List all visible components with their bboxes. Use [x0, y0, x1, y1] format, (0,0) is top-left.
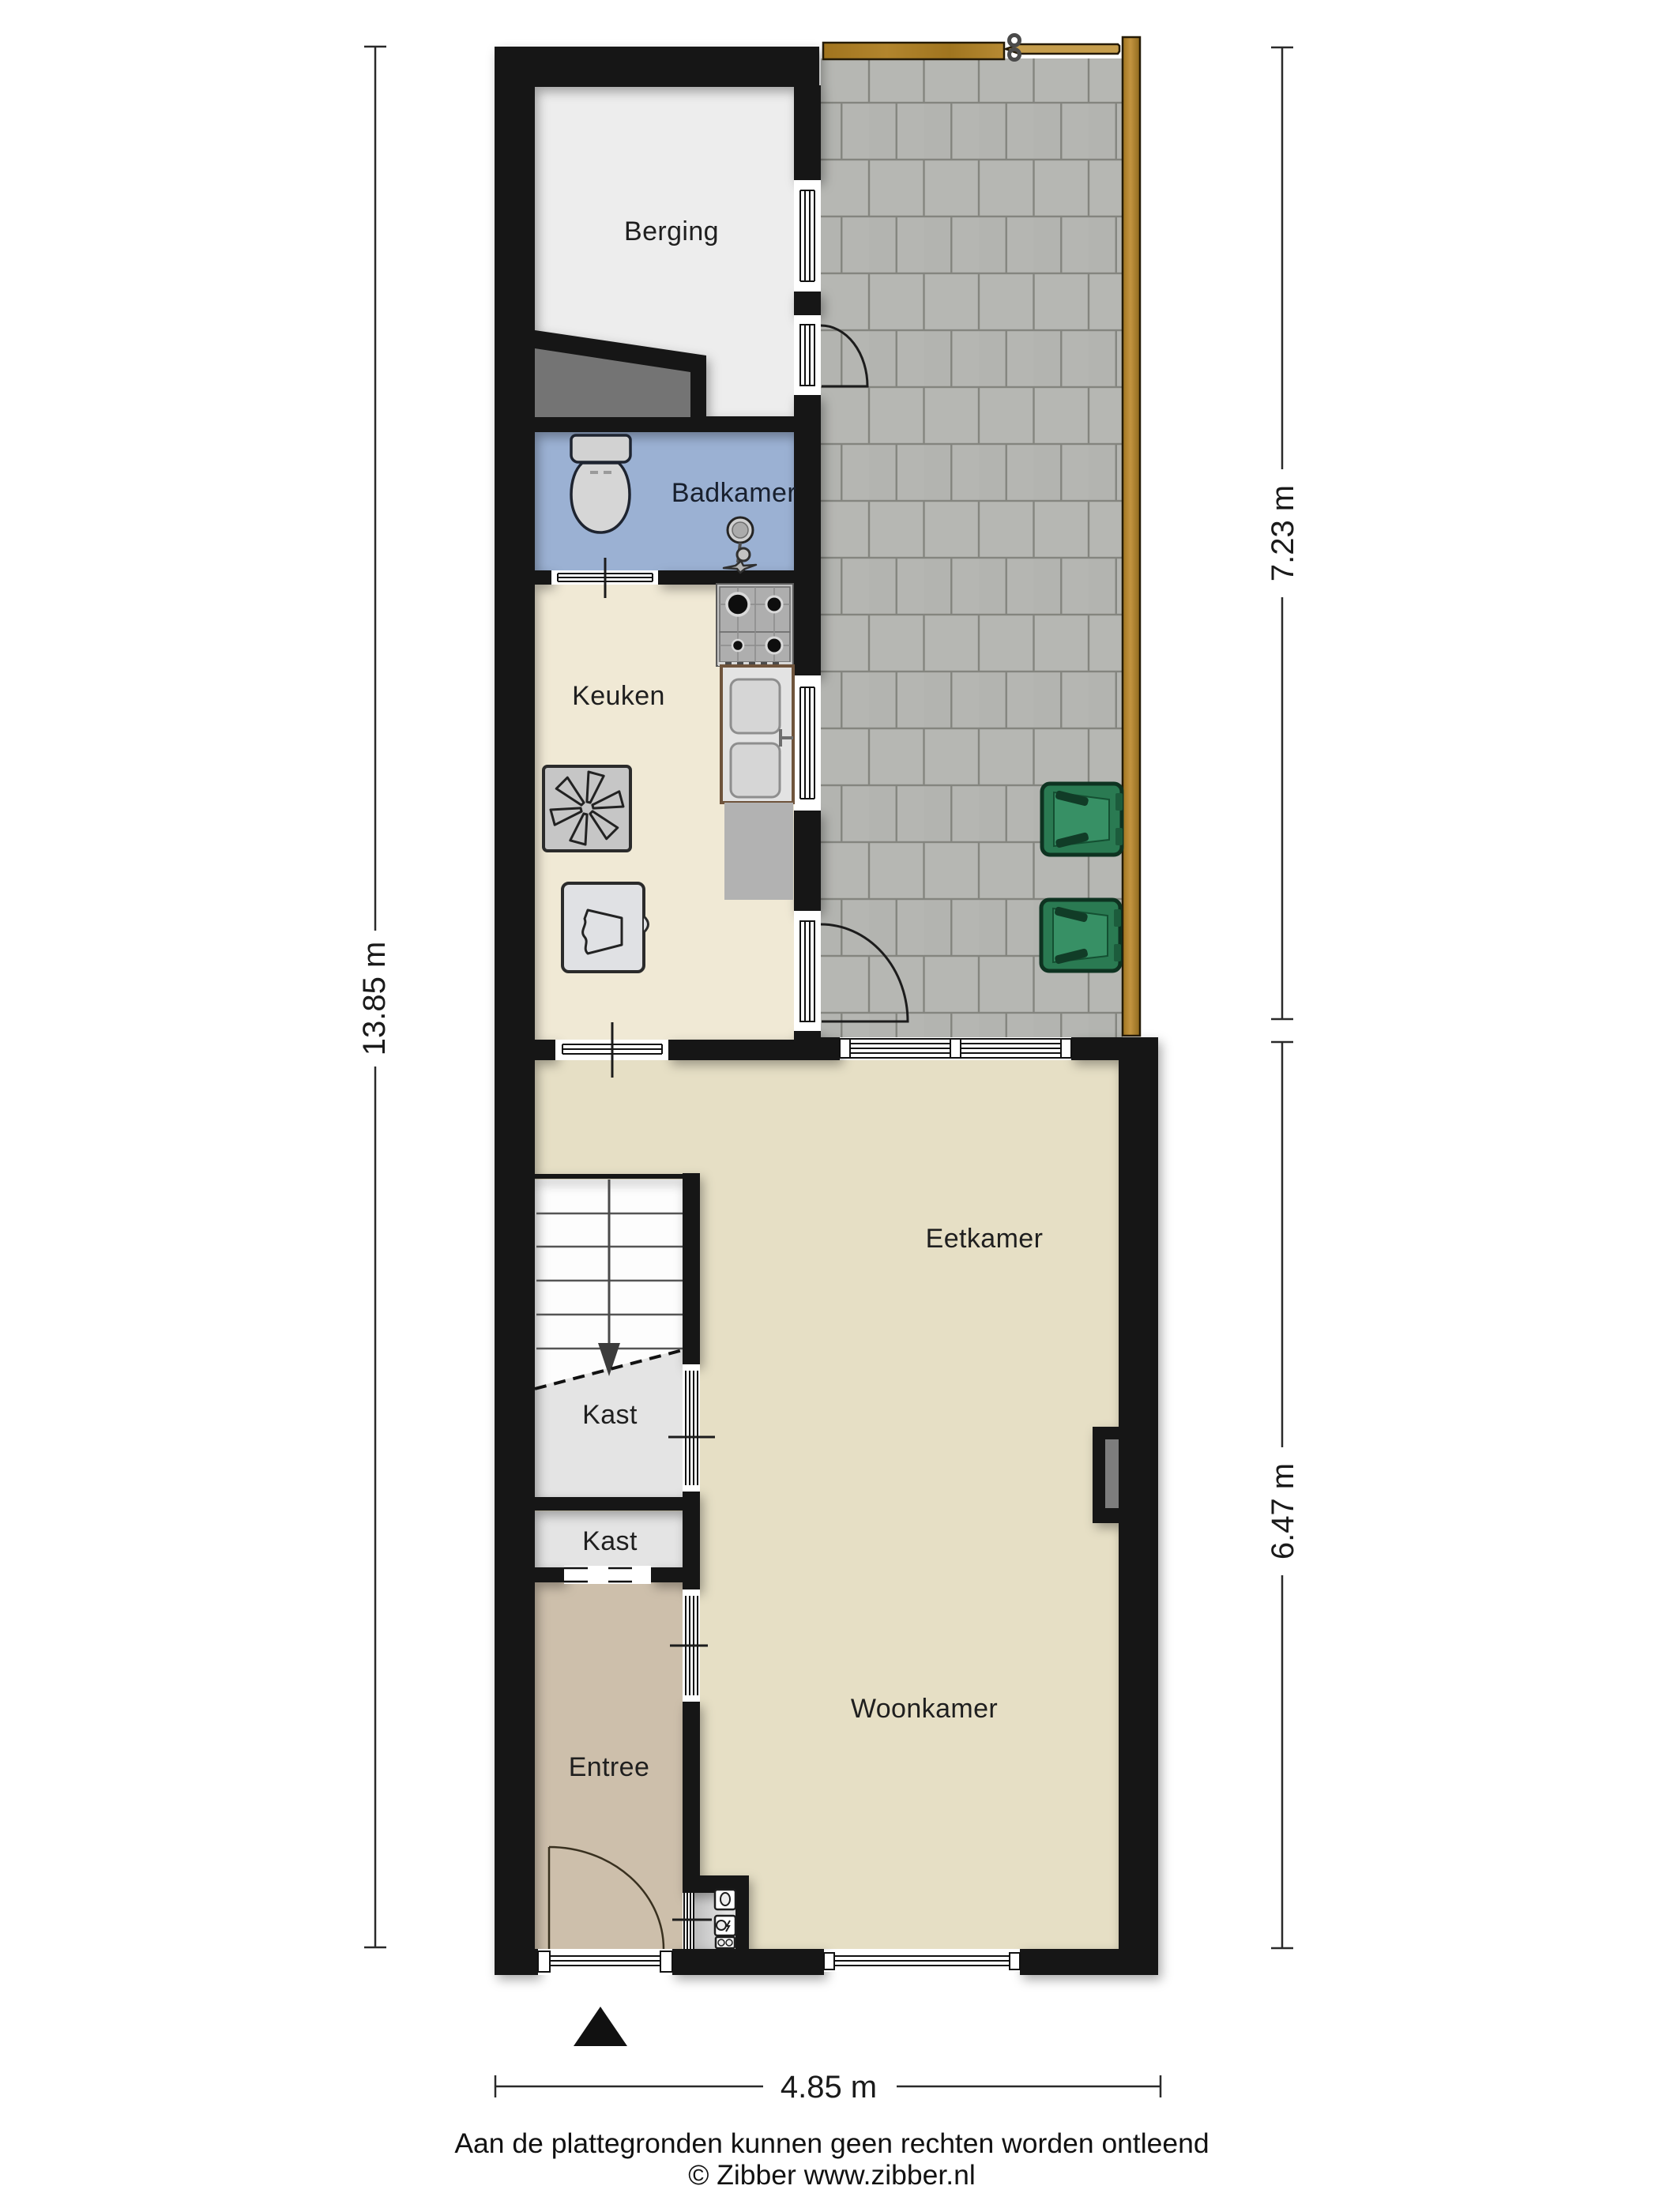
- svg-text:4.85 m: 4.85 m: [781, 2070, 877, 2105]
- svg-text:13.85 m: 13.85 m: [357, 942, 392, 1056]
- svg-text:7.23 m: 7.23 m: [1266, 485, 1300, 581]
- svg-text:Kast: Kast: [582, 1400, 638, 1430]
- svg-text:Woonkamer: Woonkamer: [851, 1694, 998, 1724]
- svg-text:Kast: Kast: [582, 1526, 638, 1556]
- svg-text:Eetkamer: Eetkamer: [926, 1224, 1044, 1254]
- svg-text:© Zibber www.zibber.nl: © Zibber www.zibber.nl: [688, 2159, 976, 2191]
- svg-text:Aan de plattegronden kunnen ge: Aan de plattegronden kunnen geen rechten…: [454, 2127, 1209, 2159]
- svg-text:Entree: Entree: [569, 1752, 650, 1782]
- svg-text:6.47 m: 6.47 m: [1266, 1463, 1300, 1559]
- svg-text:Badkamer: Badkamer: [671, 478, 796, 508]
- svg-text:Berging: Berging: [624, 216, 719, 246]
- svg-text:Keuken: Keuken: [572, 681, 665, 711]
